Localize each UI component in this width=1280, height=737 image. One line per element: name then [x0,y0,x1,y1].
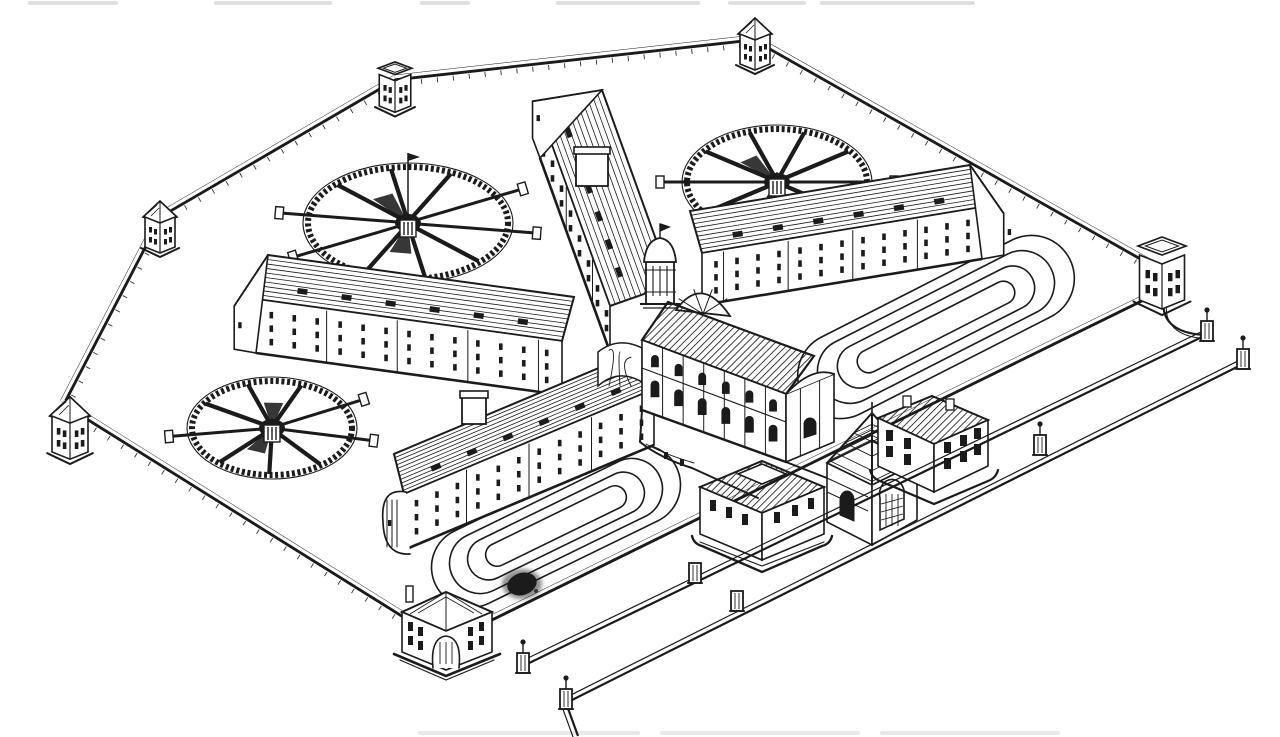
ink-blot [502,569,542,599]
engraving-figure: Black-ink bird's-eye engraving of a Pent… [0,0,1280,737]
forecourt-block-east [729,591,745,611]
forecourt-block-west [687,563,703,583]
prison-birdseye-engraving: Black-ink bird's-eye engraving of a Pent… [0,0,1280,737]
